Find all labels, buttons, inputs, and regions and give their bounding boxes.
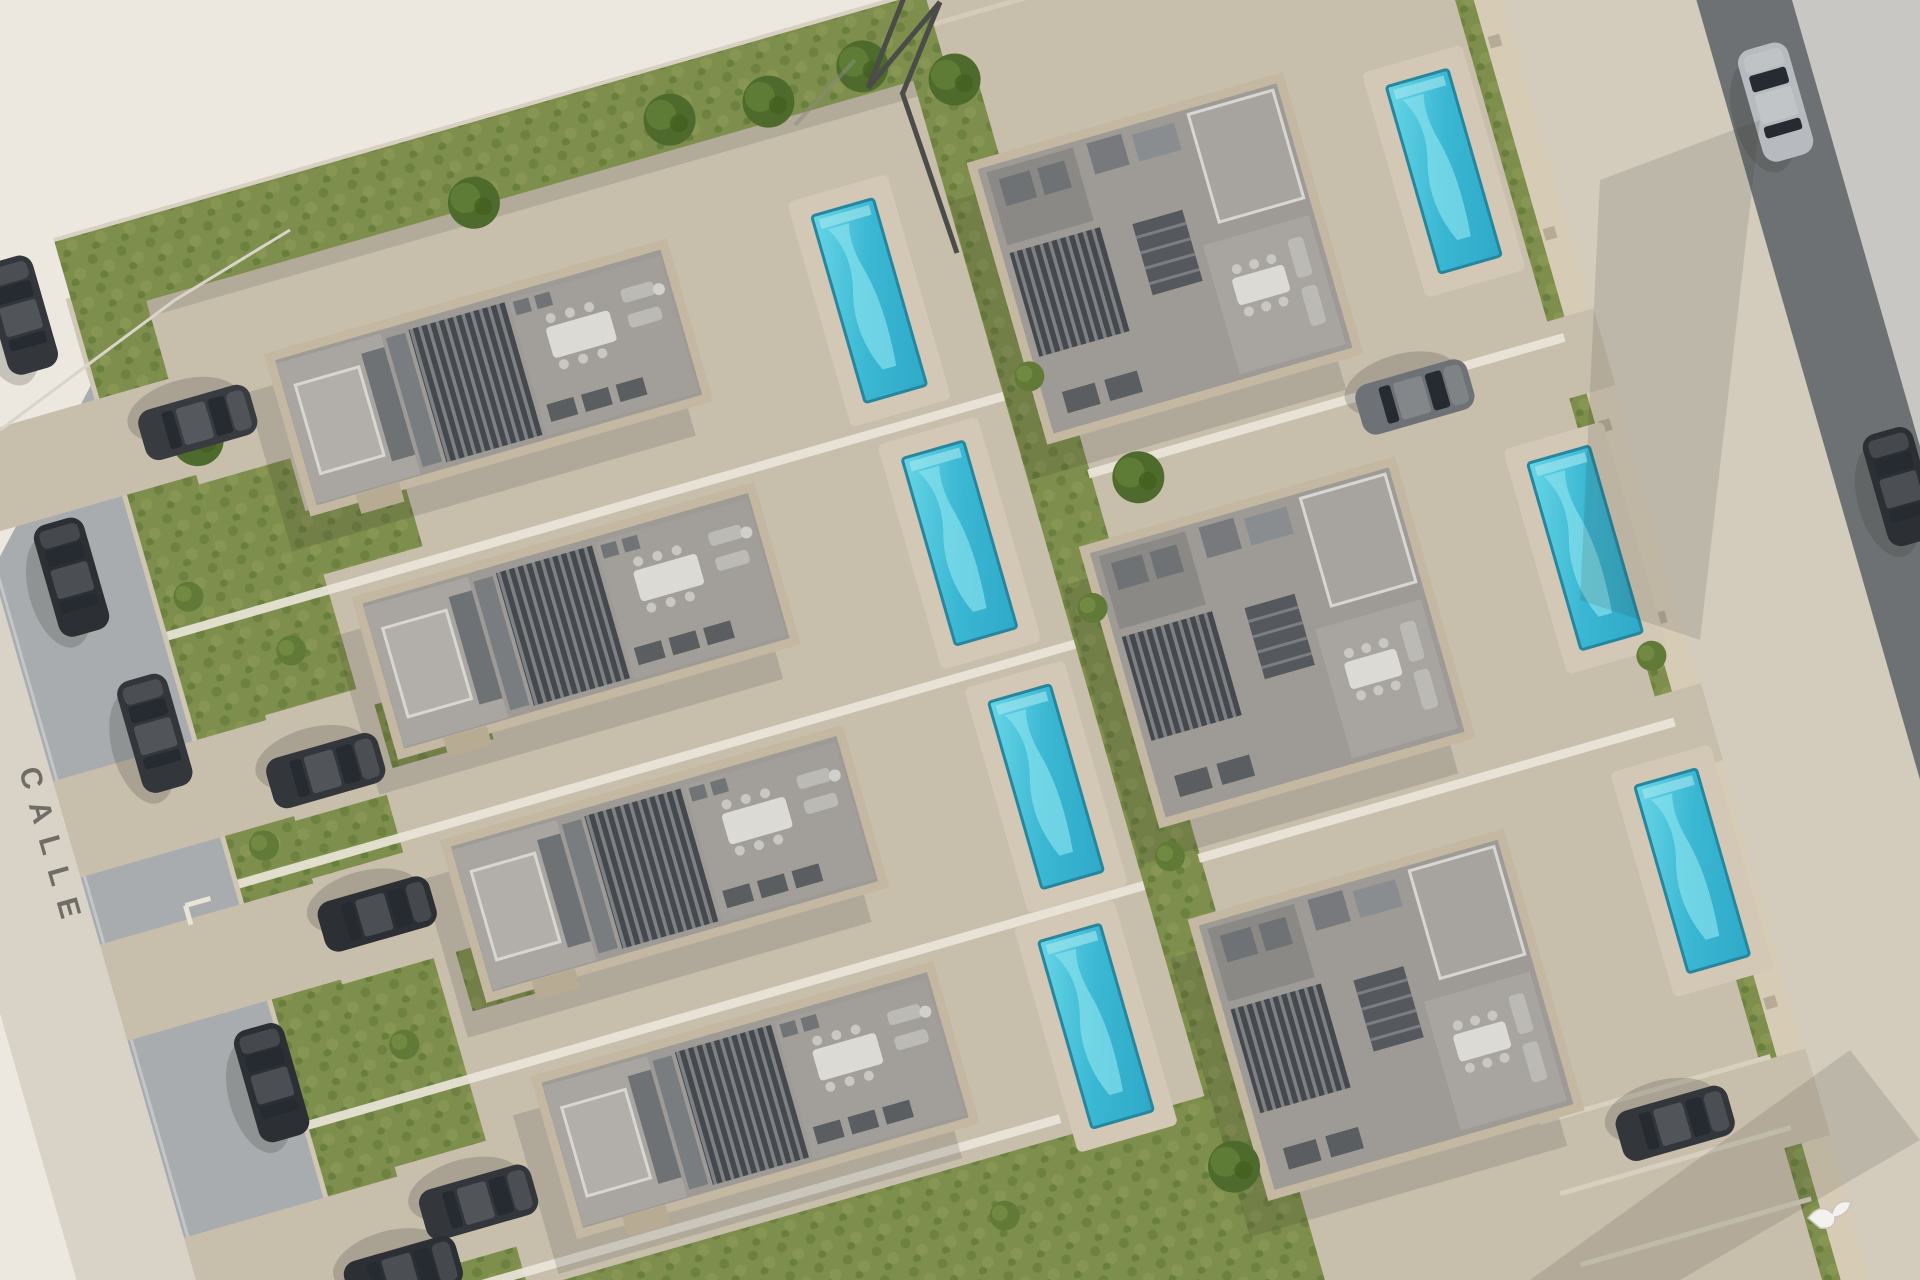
aerial-site-screenshot: CALLE (0, 0, 1920, 1280)
aerial-site-render: CALLE (0, 0, 1920, 1280)
